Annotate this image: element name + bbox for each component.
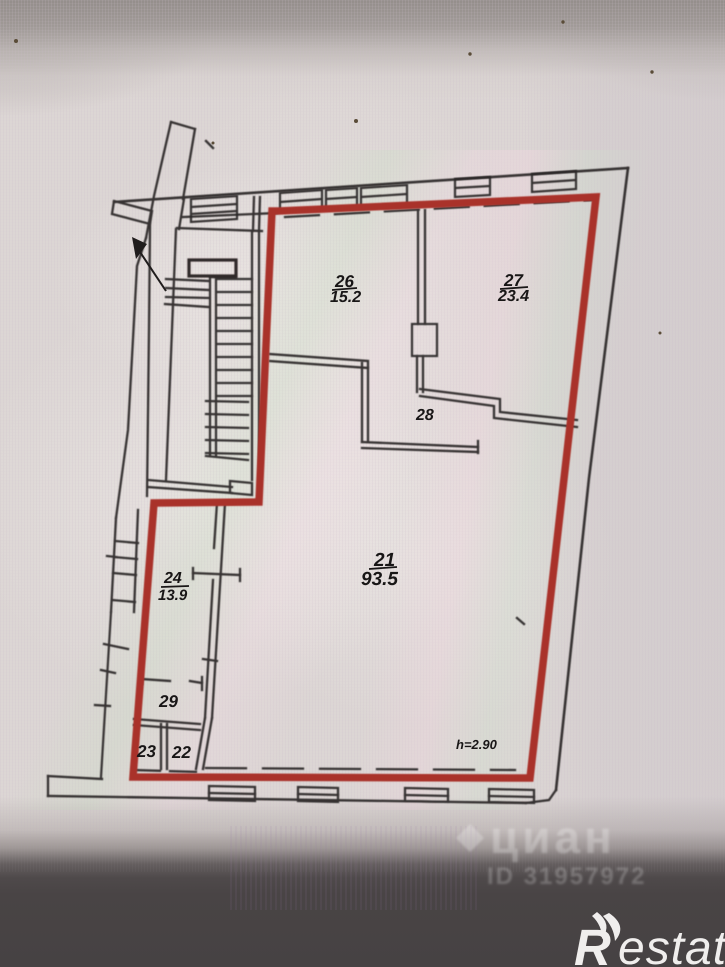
svg-text:циан: циан — [490, 811, 616, 863]
svg-text:23: 23 — [136, 742, 156, 761]
svg-text:24: 24 — [163, 570, 182, 587]
svg-text:93.5: 93.5 — [361, 569, 398, 590]
svg-text:28: 28 — [415, 407, 434, 424]
svg-text:23.4: 23.4 — [497, 288, 529, 305]
svg-text:estate: estate — [618, 922, 725, 967]
svg-text:ID 31957972: ID 31957972 — [487, 863, 646, 890]
svg-text:29: 29 — [158, 692, 178, 711]
svg-text:R: R — [574, 919, 611, 967]
svg-text:22: 22 — [171, 743, 191, 762]
svg-text:13.9: 13.9 — [158, 587, 188, 604]
svg-text:15.2: 15.2 — [330, 289, 361, 306]
svg-text:h=2.90: h=2.90 — [456, 737, 498, 752]
